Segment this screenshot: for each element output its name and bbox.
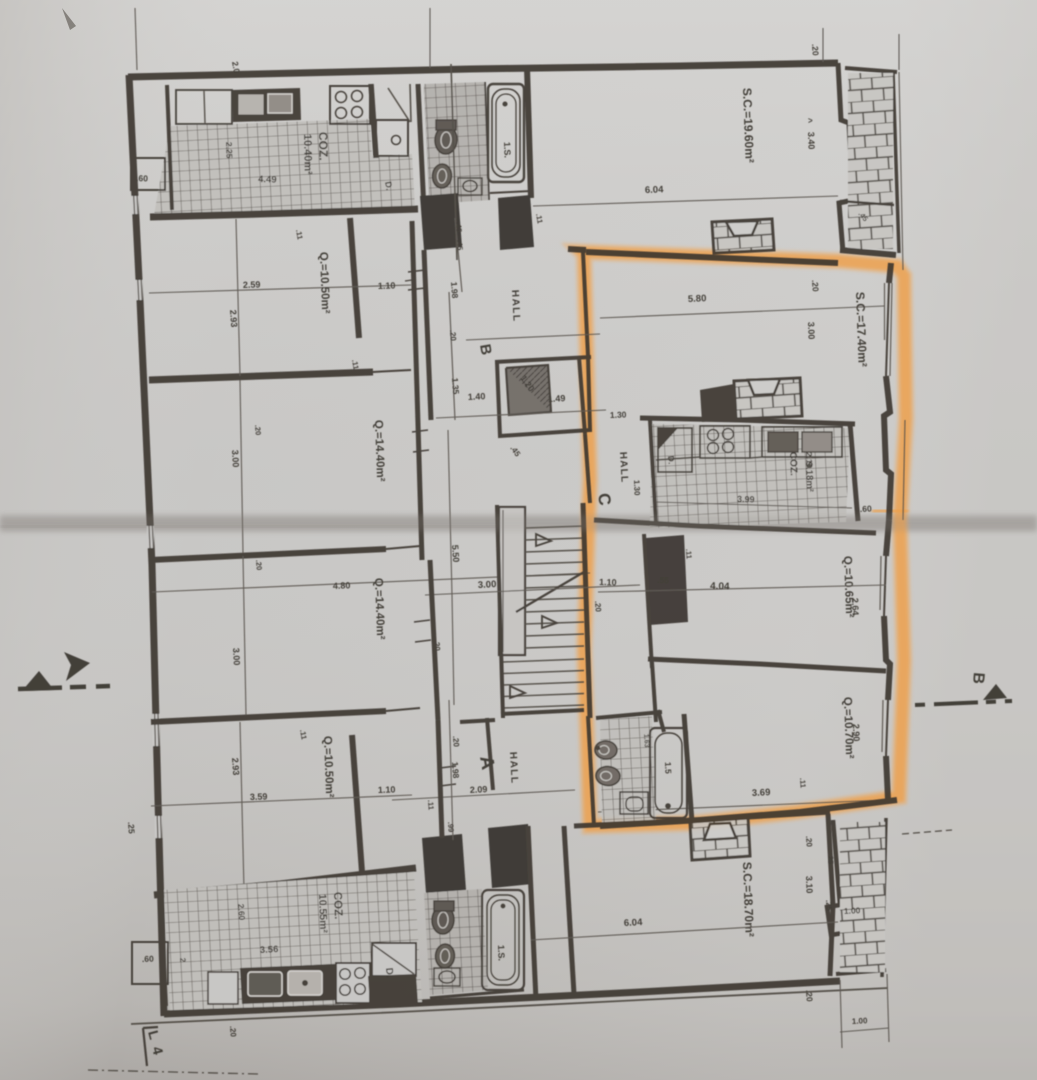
svg-text:2.09: 2.09 xyxy=(470,784,488,795)
svg-text:3.56: 3.56 xyxy=(260,944,279,956)
svg-text:HALL: HALL xyxy=(507,752,520,785)
svg-text:.11: .11 xyxy=(436,860,446,871)
svg-text:1.5: 1.5 xyxy=(663,762,673,774)
svg-text:.20: .20 xyxy=(593,601,603,613)
svg-text:B: B xyxy=(969,672,987,685)
svg-text:.20: .20 xyxy=(804,836,814,848)
svg-text:6.04: 6.04 xyxy=(645,184,665,196)
svg-text:1.S.: 1.S. xyxy=(502,142,513,158)
svg-text:4.49: 4.49 xyxy=(258,174,277,186)
svg-text:4.80: 4.80 xyxy=(333,580,351,591)
svg-text:.25: .25 xyxy=(126,821,137,834)
svg-text:.20: .20 xyxy=(810,279,821,292)
svg-text:.20: .20 xyxy=(810,43,821,56)
svg-text:3.40: 3.40 xyxy=(806,132,817,150)
svg-text:.20: .20 xyxy=(804,989,815,1002)
svg-text:.25: .25 xyxy=(824,900,834,912)
svg-text:.45: .45 xyxy=(454,222,464,233)
svg-text:1.63: 1.63 xyxy=(642,734,650,748)
svg-text:1.40: 1.40 xyxy=(468,391,486,402)
svg-text:S.C.=19.60m²: S.C.=19.60m² xyxy=(740,88,757,163)
svg-text:.55: .55 xyxy=(657,575,669,585)
svg-text:COZ.: COZ. xyxy=(331,892,344,920)
svg-text:1.00: 1.00 xyxy=(852,1016,869,1026)
svg-text:6.04: 6.04 xyxy=(624,917,644,929)
svg-text:2.0: 2.0 xyxy=(230,61,242,75)
svg-text:2.93: 2.93 xyxy=(228,309,239,327)
svg-text:.60: .60 xyxy=(142,954,154,964)
svg-text:2.93: 2.93 xyxy=(230,757,241,775)
svg-text:1.98: 1.98 xyxy=(449,281,460,298)
svg-text:.11: .11 xyxy=(294,229,305,240)
svg-text:2.60: 2.60 xyxy=(236,903,247,920)
svg-text:3.99: 3.99 xyxy=(737,494,755,504)
svg-text:1.S.: 1.S. xyxy=(496,945,507,961)
svg-text:.20: .20 xyxy=(448,330,458,342)
svg-text:3.10: 3.10 xyxy=(804,876,815,894)
svg-text:.60: .60 xyxy=(860,503,873,514)
svg-text:.20: .20 xyxy=(228,1026,238,1038)
svg-text:S.C.=17.40m²: S.C.=17.40m² xyxy=(853,292,870,367)
svg-text:.99: .99 xyxy=(446,822,456,833)
svg-text:2.90: 2.90 xyxy=(851,724,862,742)
svg-text:2.25: 2.25 xyxy=(224,142,235,159)
svg-text:3.69: 3.69 xyxy=(752,787,771,799)
svg-text:2.10: 2.10 xyxy=(804,452,815,469)
svg-text:.60: .60 xyxy=(136,173,148,183)
svg-text:COZ.: COZ. xyxy=(787,452,799,476)
svg-text:.11: .11 xyxy=(298,729,309,740)
svg-text:HALL: HALL xyxy=(509,290,522,323)
svg-text:10.55m²: 10.55m² xyxy=(316,894,329,934)
svg-text:1.00: 1.00 xyxy=(844,905,861,916)
svg-text:3.00: 3.00 xyxy=(231,648,242,666)
svg-text:D.: D. xyxy=(666,455,677,464)
svg-text:D.: D. xyxy=(383,967,395,978)
svg-text:.20: .20 xyxy=(451,736,461,748)
svg-text:Q.=14.40m²: Q.=14.40m² xyxy=(372,420,386,482)
svg-text:1.35: 1.35 xyxy=(450,377,461,394)
svg-text:5.80: 5.80 xyxy=(688,293,707,305)
svg-text:.20: .20 xyxy=(254,559,264,570)
svg-text:.11: .11 xyxy=(350,359,361,370)
svg-text:.11: .11 xyxy=(798,778,808,789)
svg-text:.45: .45 xyxy=(455,240,465,251)
svg-text:1.10: 1.10 xyxy=(599,577,617,587)
svg-text:1.10: 1.10 xyxy=(378,280,396,291)
svg-text:1.49: 1.49 xyxy=(548,393,566,404)
svg-text:3.59: 3.59 xyxy=(250,791,268,802)
svg-text:2.64: 2.64 xyxy=(850,598,861,616)
svg-text:10.40m²: 10.40m² xyxy=(301,134,314,176)
svg-text:3.00: 3.00 xyxy=(806,322,817,340)
svg-text:.20: .20 xyxy=(253,424,263,435)
svg-text:1.30: 1.30 xyxy=(632,480,642,496)
svg-text:Q.=14.40m²: Q.=14.40m² xyxy=(372,578,386,640)
svg-text:4.04: 4.04 xyxy=(710,581,730,593)
svg-text:.11: .11 xyxy=(426,800,436,811)
svg-text:3.00: 3.00 xyxy=(230,450,241,468)
svg-text:C: C xyxy=(594,492,615,507)
svg-text:S.C.=18.70m²: S.C.=18.70m² xyxy=(740,862,757,937)
svg-text:2.59: 2.59 xyxy=(243,279,261,290)
svg-text:Q.=10.50m²: Q.=10.50m² xyxy=(321,736,335,798)
svg-text:.11: .11 xyxy=(684,549,694,560)
svg-text:25: 25 xyxy=(826,856,835,865)
svg-text:1.30: 1.30 xyxy=(610,409,627,420)
svg-text:HALL: HALL xyxy=(617,452,630,484)
svg-text:Q.=10.50m²: Q.=10.50m² xyxy=(317,252,331,314)
svg-text:COZ.: COZ. xyxy=(316,132,330,161)
svg-text:D.: D. xyxy=(383,181,394,192)
svg-text:.11: .11 xyxy=(534,213,545,224)
svg-text:1.10: 1.10 xyxy=(378,784,396,795)
svg-text:3.00: 3.00 xyxy=(478,579,497,591)
